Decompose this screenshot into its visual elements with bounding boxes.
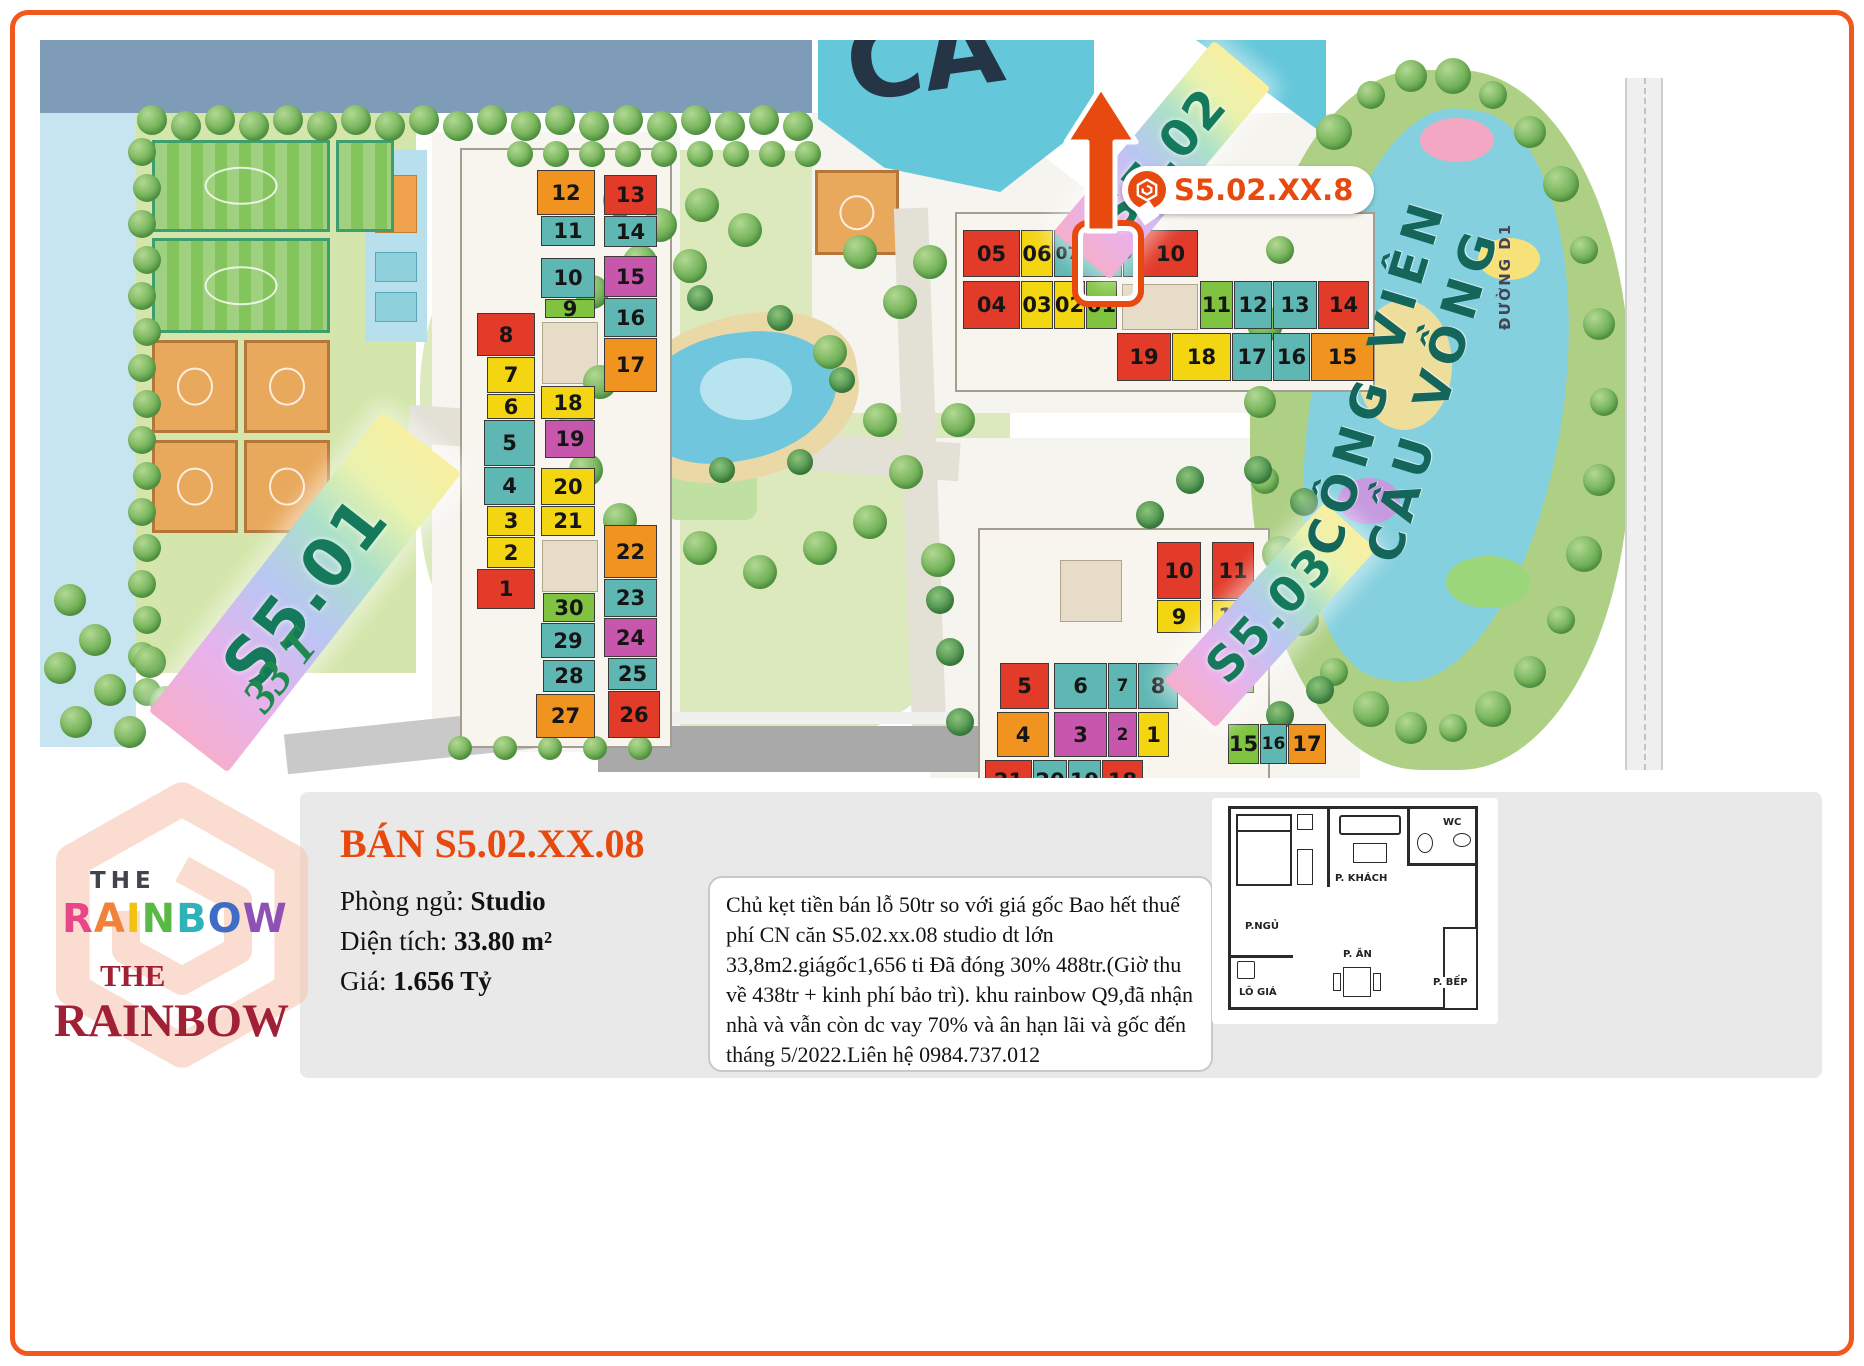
tree-icon: [1353, 691, 1389, 727]
tree-icon: [133, 246, 161, 274]
unit-s501-11: 11: [541, 216, 595, 246]
tree-icon: [133, 462, 161, 490]
unit-s503-1: 1: [1138, 712, 1169, 757]
price-value: 1.656 Tỷ: [393, 966, 492, 996]
unit-s501-29: 29: [541, 623, 595, 658]
unit-callout-label: S5.02.XX.8: [1174, 173, 1353, 207]
tree-icon: [79, 624, 111, 656]
tree-icon: [94, 674, 126, 706]
tree-icon: [511, 111, 541, 141]
tree-icon: [443, 111, 473, 141]
tree-icon: [133, 606, 161, 634]
unit-s503-15: 15: [1228, 724, 1259, 764]
unit-callout: S5.02.XX.8: [1122, 166, 1374, 214]
tree-icon: [545, 105, 575, 135]
tree-icon: [128, 570, 156, 598]
unit-s501-19: 19: [545, 420, 595, 458]
unit-s502-19: 19: [1117, 333, 1171, 381]
coffee-table-icon: [1353, 843, 1387, 863]
top-water-band: [40, 40, 812, 113]
tree-icon: [239, 111, 269, 141]
listing-title: BÁN S5.02.XX.08: [340, 820, 644, 867]
unit-s502-11: 11: [1200, 281, 1233, 329]
balcony-wall: [1231, 955, 1293, 958]
unit-s501-4: 4: [484, 467, 535, 505]
unit-s501-9: 9: [545, 299, 595, 318]
floor-plan: P. KHÁCH WC P.NGỦ P. ĂN P. BẾP LÔ GIÁ: [1228, 806, 1478, 1010]
tree-icon: [803, 531, 837, 565]
tree-icon: [579, 141, 605, 167]
dining-table-icon: [1343, 967, 1371, 997]
unit-s501-7: 7: [487, 357, 535, 393]
kitchen-label: P. BẾP: [1433, 977, 1468, 988]
tree-icon: [687, 141, 713, 167]
logo-letter: I: [126, 896, 142, 942]
tree-icon: [1306, 676, 1334, 704]
unit-s501-27: 27: [536, 694, 595, 738]
site-plan-map: CẦ 1213111410159: [0, 0, 1864, 778]
unit-s502-18: 18: [1172, 333, 1231, 381]
tree-icon: [1266, 236, 1294, 264]
balcony-label: LÔ GIÁ: [1239, 987, 1277, 998]
tree-icon: [795, 141, 821, 167]
unit-s501-30: 30: [543, 593, 595, 622]
unit-s502-16: 16: [1273, 333, 1310, 381]
tree-icon: [687, 285, 713, 311]
unit-s501-8: 8: [477, 313, 535, 356]
logo-the-small: THE: [90, 868, 156, 894]
tree-icon: [628, 736, 652, 760]
logo-letter: N: [142, 896, 176, 942]
sofa-icon: [1339, 815, 1401, 835]
toilet-icon: [1417, 833, 1433, 853]
wall: [1327, 809, 1330, 887]
unit-s501-26: 26: [608, 691, 660, 738]
unit-s501-16: 16: [604, 298, 657, 337]
unit-s501-14: 14: [604, 216, 657, 247]
tree-icon: [128, 498, 156, 526]
tree-icon: [583, 736, 607, 760]
unit-s501-1: 1: [477, 569, 535, 609]
tree-icon: [448, 736, 472, 760]
tree-icon: [543, 141, 569, 167]
chair-icon: [1373, 973, 1381, 991]
sports-field-1: [152, 140, 330, 232]
tree-icon: [1176, 466, 1204, 494]
tree-icon: [728, 213, 762, 247]
tree-icon: [913, 245, 947, 279]
tree-icon: [936, 638, 964, 666]
unit-s503-21: 21: [985, 760, 1032, 778]
road-name-label: ĐƯỜNG D1: [1496, 223, 1514, 330]
tree-icon: [673, 249, 707, 283]
tree-icon: [749, 105, 779, 135]
unit-s501-2: 2: [487, 537, 535, 568]
tree-icon: [647, 111, 677, 141]
tree-icon: [743, 555, 777, 589]
tree-icon: [715, 111, 745, 141]
bedroom-value: Studio: [471, 886, 546, 916]
unit-s503-4: 4: [997, 712, 1049, 757]
tree-icon: [493, 736, 517, 760]
unit-s501-25: 25: [608, 658, 657, 690]
volleyball-court: [336, 140, 394, 232]
up-arrow-icon: [1056, 84, 1146, 234]
tree-icon: [787, 449, 813, 475]
tree-icon: [941, 403, 975, 437]
logo-letter: R: [62, 896, 94, 942]
tree-icon: [1439, 714, 1467, 742]
unit-s501-23: 23: [604, 579, 657, 617]
unit-s502-10: 10: [1143, 230, 1198, 277]
unit-s503-19: 19: [1068, 760, 1101, 778]
tree-icon: [171, 111, 201, 141]
tree-icon: [477, 105, 507, 135]
logo-the-red: THE: [100, 958, 165, 994]
tree-icon: [1583, 308, 1615, 340]
tree-icon: [759, 141, 785, 167]
tree-icon: [767, 305, 793, 331]
pool-letters: CẦ: [838, 40, 1010, 126]
tree-icon: [137, 105, 167, 135]
unit-s502-05: 05: [963, 230, 1020, 277]
tree-icon: [946, 708, 974, 736]
unit-s502-17: 17: [1232, 333, 1272, 381]
lagoon-shallow: [700, 358, 792, 420]
tree-icon: [1543, 166, 1579, 202]
tree-icon: [723, 141, 749, 167]
tree-icon: [128, 354, 156, 382]
tree-icon: [307, 111, 337, 141]
unit-s501-12: 12: [537, 170, 595, 215]
tree-icon: [60, 706, 92, 738]
core-s501-b: [542, 540, 598, 592]
unit-s503-20: 20: [1033, 760, 1067, 778]
tree-icon: [128, 210, 156, 238]
price-field: Giá: 1.656 Tỷ: [340, 966, 492, 997]
wardrobe-icon: [1297, 849, 1313, 885]
core-s503: [1060, 560, 1122, 622]
tree-icon: [926, 586, 954, 614]
tree-icon: [783, 111, 813, 141]
tree-icon: [685, 188, 719, 222]
tree-icon: [651, 141, 677, 167]
unit-s503-7: 7: [1108, 663, 1137, 709]
tree-icon: [615, 141, 641, 167]
unit-s503-3: 3: [1054, 712, 1107, 757]
dining-label: P. ĂN: [1343, 949, 1372, 960]
logo-letter: B: [176, 896, 208, 942]
tree-icon: [1244, 456, 1272, 484]
tree-icon: [1514, 656, 1546, 688]
listing-flyer: CẦ 1213111410159: [0, 0, 1864, 1366]
wc-label: WC: [1443, 817, 1461, 828]
tree-icon: [813, 335, 847, 369]
unit-s502-06: 06: [1021, 230, 1053, 277]
basketball-court-1: [152, 340, 238, 433]
unit-s503-17: 17: [1288, 724, 1326, 764]
unit-s503-6: 6: [1054, 663, 1107, 709]
tree-icon: [579, 111, 609, 141]
unit-s501-28: 28: [543, 660, 595, 692]
unit-s502-04: 04: [963, 281, 1020, 329]
tree-icon: [114, 716, 146, 748]
area-field: Diện tích: 33.80 m²: [340, 926, 552, 957]
logo-rainbow-red: RAINBOW: [54, 994, 289, 1048]
unit-s503-10: 10: [1157, 542, 1201, 599]
bedroom-label-fp: P.NGỦ: [1245, 921, 1279, 932]
tree-icon: [613, 105, 643, 135]
unit-s503-18: 18: [1102, 760, 1143, 778]
tree-icon: [863, 403, 897, 437]
tree-icon: [133, 390, 161, 418]
basketball-court-3: [152, 440, 238, 533]
unit-s501-10: 10: [541, 258, 595, 298]
unit-s502-12: 12: [1234, 281, 1272, 329]
unit-s503-5: 5: [1000, 663, 1049, 709]
logo-letter: W: [243, 896, 288, 942]
washer-icon: [1237, 961, 1255, 979]
unit-s503-9: 9: [1157, 600, 1201, 633]
tree-icon: [375, 111, 405, 141]
tree-icon: [889, 455, 923, 489]
bedroom-field: Phòng ngủ: Studio: [340, 886, 546, 917]
tree-icon: [1547, 606, 1575, 634]
price-label: Giá:: [340, 966, 387, 996]
tree-icon: [341, 105, 371, 135]
tree-icon: [54, 584, 86, 616]
unit-s501-24: 24: [604, 618, 657, 657]
bedroom-label: Phòng ngủ:: [340, 886, 464, 916]
unit-s501-20: 20: [541, 468, 595, 505]
unit-s501-6: 6: [487, 394, 535, 419]
chair-icon: [1333, 973, 1341, 991]
tree-icon: [134, 646, 166, 678]
tree-icon: [128, 282, 156, 310]
bed-icon: [1236, 814, 1292, 886]
tree-icon: [829, 367, 855, 393]
unit-s501-15: 15: [604, 256, 657, 297]
listing-description: Chủ kẹt tiền bán lỗ 50tr so với giá gốc …: [708, 876, 1213, 1072]
tree-icon: [1244, 386, 1276, 418]
tree-icon: [133, 318, 161, 346]
tree-icon: [128, 138, 156, 166]
pond-green-patch: [1446, 556, 1530, 608]
nightstand-icon: [1297, 814, 1313, 830]
logo-letter: A: [94, 896, 126, 942]
logo-rainbow-colored: RAINBOW: [62, 896, 288, 942]
right-road: [1625, 78, 1663, 770]
unit-s503-2: 2: [1108, 712, 1137, 757]
tree-icon: [681, 105, 711, 135]
basketball-court-2: [244, 340, 330, 433]
tree-icon: [273, 105, 303, 135]
unit-s501-18: 18: [541, 386, 595, 419]
tree-icon: [133, 174, 161, 202]
area-value: 33.80 m²: [454, 926, 552, 956]
tree-icon: [538, 736, 562, 760]
tree-icon: [921, 543, 955, 577]
tree-icon: [205, 105, 235, 135]
aqua-deck-2: [375, 292, 417, 322]
tree-icon: [1136, 501, 1164, 529]
tree-icon: [709, 457, 735, 483]
unit-s501-13: 13: [604, 175, 657, 215]
tree-icon: [1395, 712, 1427, 744]
logo-letter: O: [208, 896, 243, 942]
wall: [1407, 863, 1477, 866]
unit-s501-3: 3: [487, 506, 535, 536]
wall: [1407, 809, 1410, 865]
unit-s501-17: 17: [604, 338, 657, 392]
unit-s502-03: 03: [1021, 281, 1053, 329]
tree-icon: [1475, 691, 1511, 727]
unit-s502-13: 13: [1273, 281, 1317, 329]
aqua-deck-1: [375, 252, 417, 282]
unit-s501-5: 5: [484, 420, 535, 466]
tree-icon: [409, 105, 439, 135]
tree-icon: [1590, 388, 1618, 416]
tree-icon: [507, 141, 533, 167]
sink-icon: [1453, 833, 1471, 847]
tree-icon: [1514, 116, 1546, 148]
rainbow-logo-icon: [1128, 171, 1166, 209]
pond-pink-patch: [1420, 118, 1494, 162]
tree-icon: [1570, 236, 1598, 264]
tree-icon: [1435, 58, 1471, 94]
area-label: Diện tích:: [340, 926, 447, 956]
unit-s501-21: 21: [541, 506, 595, 536]
tree-icon: [843, 235, 877, 269]
tree-icon: [883, 285, 917, 319]
unit-s501-22: 22: [604, 525, 657, 578]
living-label: P. KHÁCH: [1335, 873, 1387, 884]
tree-icon: [133, 534, 161, 562]
tree-icon: [128, 426, 156, 454]
tree-icon: [853, 505, 887, 539]
unit-s503-16: 16: [1260, 724, 1287, 764]
tree-icon: [44, 652, 76, 684]
kitchen-counter-icon: [1443, 927, 1478, 1010]
tree-icon: [683, 531, 717, 565]
sports-field-2: [152, 238, 330, 333]
